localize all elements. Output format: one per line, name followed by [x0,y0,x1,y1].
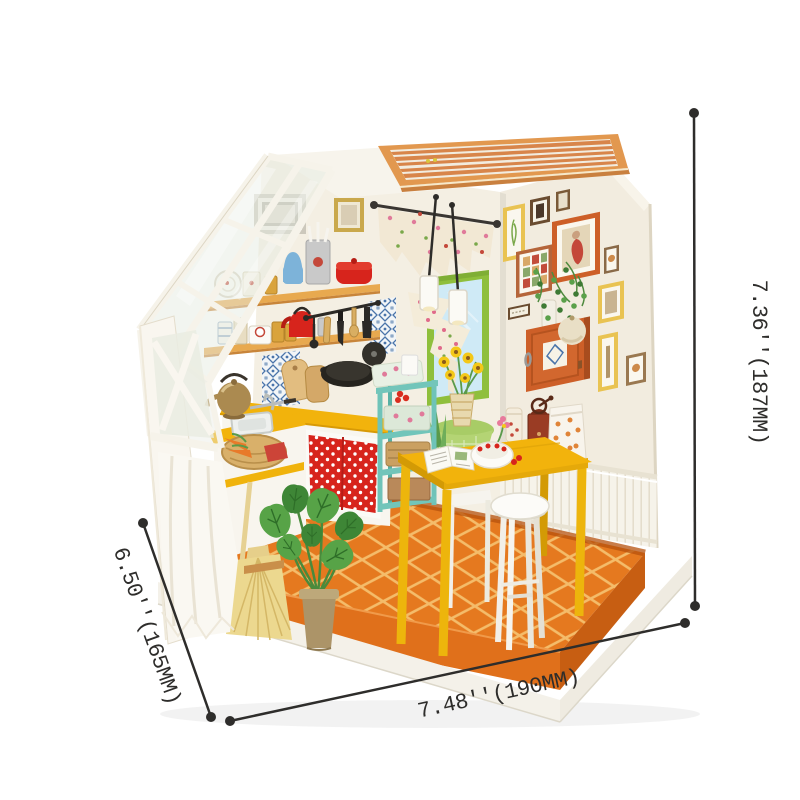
dollhouse-illustration: 7.36''(187MM) 6.50''(165MM) 7.48''(190MM… [0,0,800,800]
dimension-height: 7.36''(187MM) [689,108,771,611]
height-dimension-label: 7.36''(187MM) [746,279,771,444]
product-photo: 7.36''(187MM) 6.50''(165MM) 7.48''(190MM… [0,0,800,800]
gold-picture-frame [334,198,364,232]
left-frame-structure [140,316,238,644]
